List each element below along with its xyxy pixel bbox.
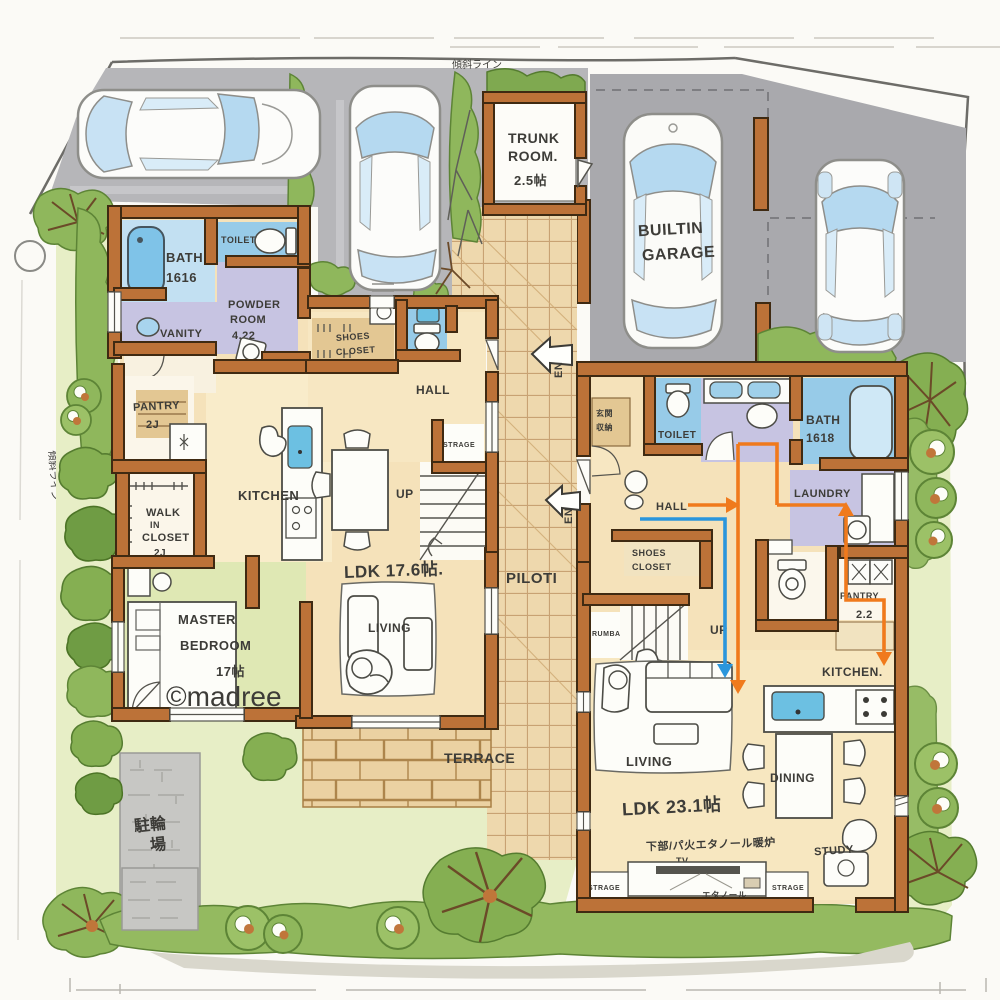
svg-text:LDK 17.6帖.: LDK 17.6帖.	[344, 558, 444, 581]
svg-text:LAUNDRY: LAUNDRY	[794, 488, 851, 500]
svg-text:1616: 1616	[166, 270, 197, 285]
svg-text:POWDER: POWDER	[228, 299, 281, 311]
svg-text:LIVING: LIVING	[626, 754, 672, 769]
svg-text:MASTER: MASTER	[178, 612, 236, 627]
svg-text:TRUNK: TRUNK	[508, 130, 560, 146]
svg-text:KITCHEN.: KITCHEN.	[822, 665, 883, 679]
svg-text:TOILET: TOILET	[221, 235, 256, 245]
svg-text:WALK: WALK	[146, 507, 180, 519]
svg-text:STRAGE: STRAGE	[443, 442, 475, 449]
svg-text:TERRACE: TERRACE	[444, 750, 515, 766]
svg-text:RUMBA: RUMBA	[592, 631, 621, 638]
svg-text:UP: UP	[396, 487, 414, 501]
svg-text:EN: EN	[563, 508, 575, 524]
svg-text:PANTRY: PANTRY	[133, 399, 181, 413]
svg-text:BUILTIN: BUILTIN	[638, 220, 704, 240]
svg-text:DINING: DINING	[770, 771, 815, 785]
svg-text:©madree: ©madree	[166, 681, 282, 712]
svg-text:LIVING: LIVING	[368, 621, 411, 635]
svg-text:BEDROOM: BEDROOM	[180, 638, 251, 653]
svg-text:SHOES: SHOES	[632, 548, 666, 558]
svg-text:2.5帖: 2.5帖	[514, 173, 547, 188]
svg-text:BATH: BATH	[166, 250, 203, 265]
svg-text:1618: 1618	[806, 431, 835, 445]
svg-text:CLOSET: CLOSET	[632, 562, 672, 572]
svg-text:ROOM.: ROOM.	[508, 148, 558, 164]
svg-text:BATH: BATH	[806, 413, 840, 427]
svg-text:VANITY: VANITY	[160, 328, 203, 340]
svg-text:2J: 2J	[146, 419, 159, 431]
svg-text:STRAGE: STRAGE	[772, 885, 804, 892]
svg-text:場: 場	[149, 835, 167, 855]
svg-text:玄関: 玄関	[596, 408, 613, 418]
svg-text:STRAGE: STRAGE	[588, 885, 620, 892]
svg-text:17帖: 17帖	[216, 664, 245, 679]
svg-text:EN: EN	[553, 362, 565, 378]
svg-text:2.2: 2.2	[856, 609, 873, 621]
svg-text:IN: IN	[150, 520, 160, 530]
svg-text:傾斜ライン: 傾斜ライン	[452, 58, 502, 71]
svg-text:収納: 収納	[596, 422, 613, 432]
svg-text:HALL: HALL	[416, 383, 450, 397]
svg-text:HALL: HALL	[656, 501, 687, 513]
svg-text:ROOM: ROOM	[230, 314, 266, 326]
svg-text:TOILET: TOILET	[658, 430, 696, 441]
svg-text:PILOTI: PILOTI	[506, 570, 557, 587]
svg-text:CLOSET: CLOSET	[142, 532, 190, 544]
svg-text:KITCHEN: KITCHEN	[238, 488, 299, 503]
